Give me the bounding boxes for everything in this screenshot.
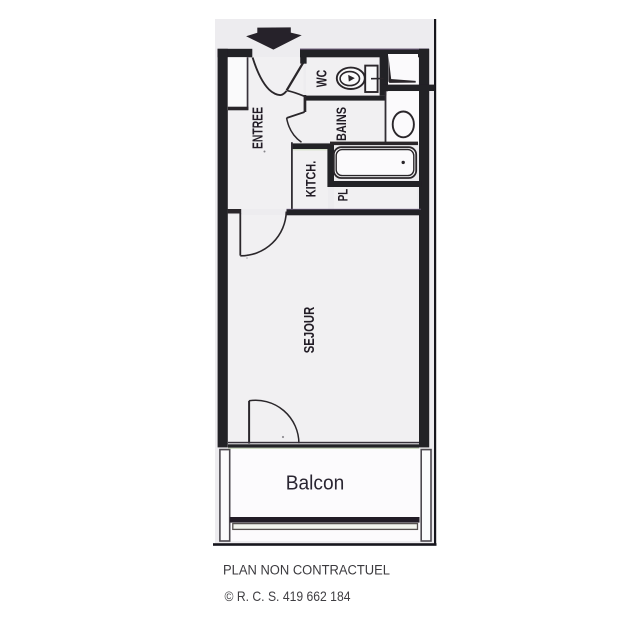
svg-text:KITCH.: KITCH.	[304, 161, 320, 198]
svg-text:PLAN NON CONTRACTUEL: PLAN NON CONTRACTUEL	[223, 562, 390, 577]
svg-text:SEJOUR: SEJOUR	[302, 306, 318, 353]
svg-text:PL: PL	[336, 189, 352, 202]
svg-text:BAINS: BAINS	[334, 107, 350, 141]
svg-text:WC: WC	[315, 69, 331, 87]
svg-text:ENTREE: ENTREE	[251, 107, 267, 149]
svg-text:© R. C. S. 419 662 184: © R. C. S. 419 662 184	[225, 588, 351, 604]
svg-text:Balcon: Balcon	[286, 472, 345, 495]
